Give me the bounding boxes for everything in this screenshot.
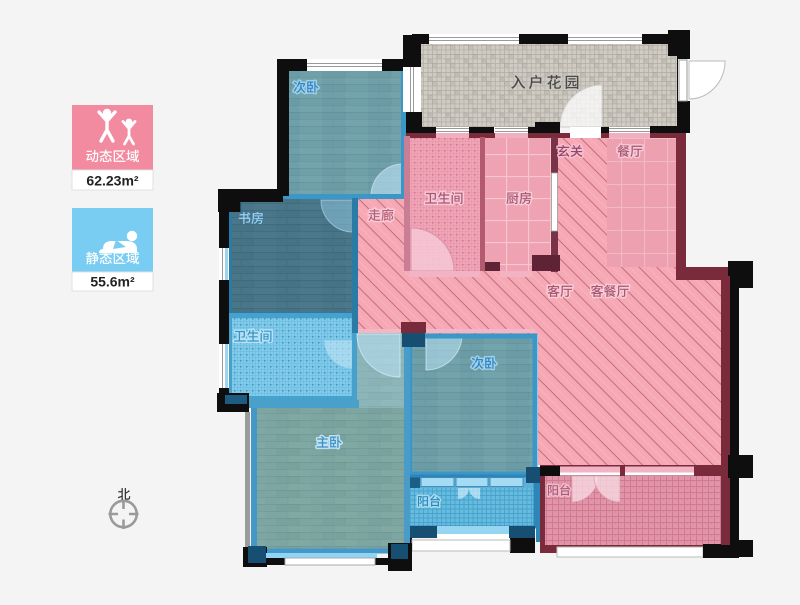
svg-text:62.23m²: 62.23m²	[86, 173, 138, 189]
svg-text:55.6m²: 55.6m²	[90, 274, 135, 290]
